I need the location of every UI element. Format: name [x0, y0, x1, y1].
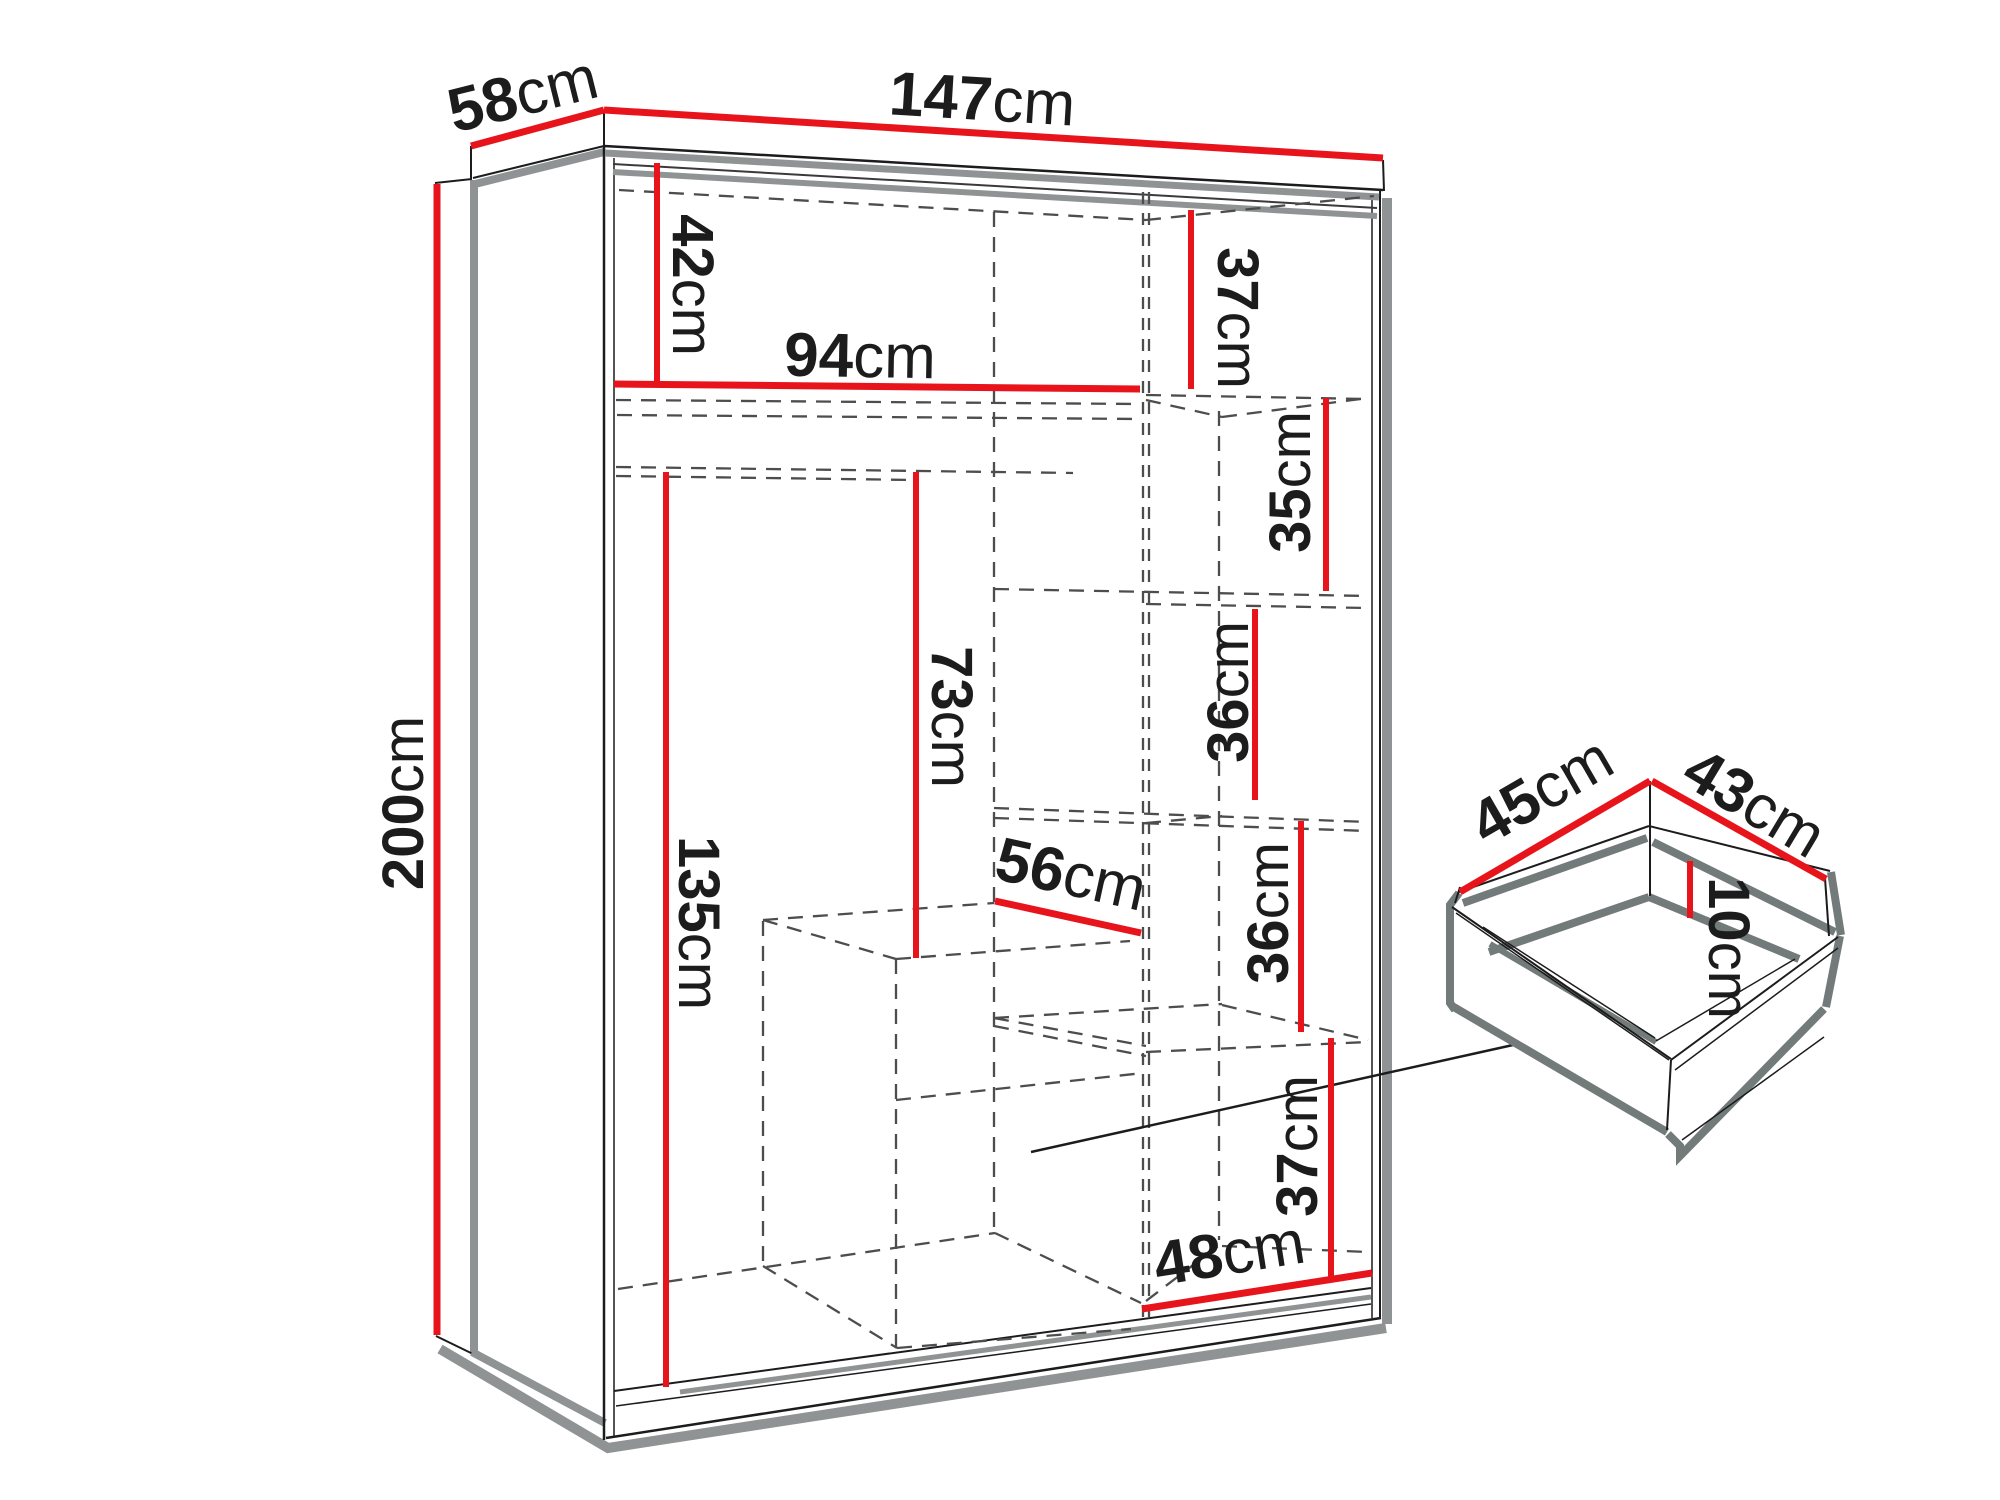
- svg-text:36cm: 36cm: [1236, 842, 1301, 984]
- svg-text:10cm: 10cm: [1696, 877, 1761, 1019]
- svg-text:135cm: 135cm: [666, 836, 731, 1010]
- svg-text:147cm: 147cm: [887, 60, 1077, 140]
- svg-text:35cm: 35cm: [1258, 411, 1323, 553]
- svg-text:36cm: 36cm: [1196, 621, 1261, 763]
- svg-text:200cm: 200cm: [371, 716, 436, 890]
- svg-text:94cm: 94cm: [784, 321, 937, 393]
- svg-text:73cm: 73cm: [919, 646, 984, 788]
- svg-text:37cm: 37cm: [1265, 1075, 1330, 1217]
- svg-text:37cm: 37cm: [1205, 247, 1270, 389]
- svg-text:42cm: 42cm: [660, 214, 725, 356]
